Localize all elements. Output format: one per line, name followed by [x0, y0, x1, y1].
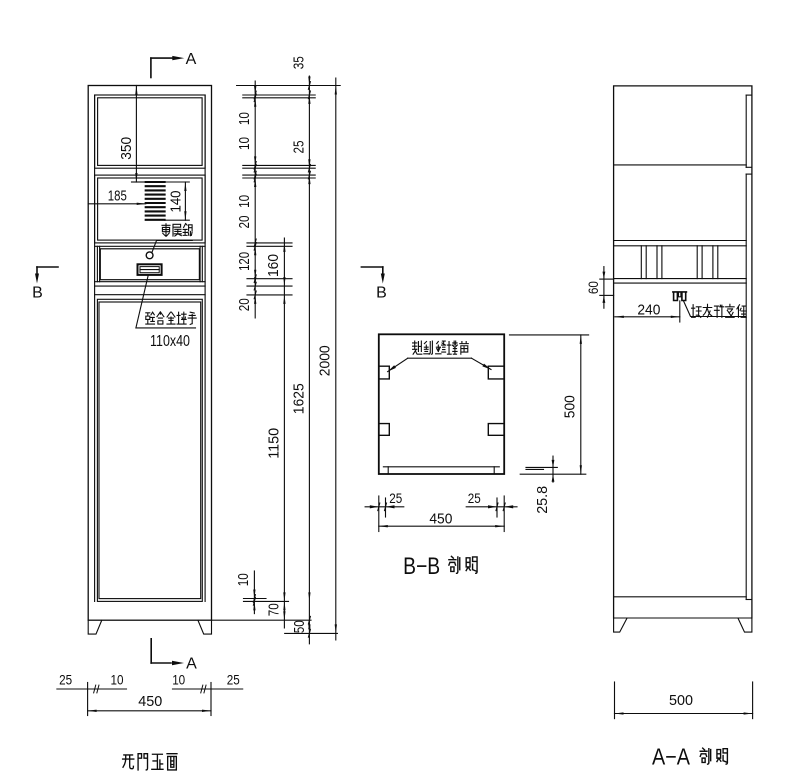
svg-text:B: B	[376, 285, 387, 302]
svg-text:B: B	[32, 285, 43, 302]
svg-text:20: 20	[236, 216, 253, 229]
svg-text:25: 25	[59, 672, 72, 688]
svg-text:2000: 2000	[316, 345, 333, 376]
svg-text:450: 450	[138, 693, 162, 710]
svg-text:25: 25	[290, 141, 307, 154]
svg-text:120: 120	[236, 252, 253, 271]
svg-text:1150: 1150	[266, 428, 283, 459]
svg-text:10: 10	[236, 195, 253, 208]
svg-text:50: 50	[291, 620, 308, 633]
svg-text:70: 70	[266, 603, 283, 616]
svg-text:160: 160	[265, 254, 282, 277]
svg-text:25: 25	[389, 490, 402, 506]
svg-text:500: 500	[669, 692, 693, 709]
svg-text:1625: 1625	[290, 383, 307, 414]
svg-text:500: 500	[561, 395, 578, 418]
svg-text:240: 240	[637, 302, 660, 319]
svg-text:10: 10	[172, 672, 185, 688]
svg-text:B−B: B−B	[403, 553, 440, 580]
svg-text:185: 185	[108, 188, 127, 205]
svg-text:35: 35	[290, 56, 307, 69]
svg-text:A: A	[186, 656, 197, 673]
svg-text:110x40: 110x40	[150, 333, 190, 350]
svg-text:25.8: 25.8	[534, 486, 551, 514]
svg-text:10: 10	[235, 573, 252, 586]
svg-text:60: 60	[585, 281, 601, 294]
svg-text:10: 10	[236, 112, 253, 125]
svg-text:350: 350	[118, 137, 135, 160]
svg-text:20: 20	[236, 298, 253, 311]
svg-text:10: 10	[236, 137, 253, 150]
svg-text:10: 10	[111, 672, 124, 688]
svg-text:A: A	[186, 51, 197, 68]
svg-text:140: 140	[168, 191, 185, 213]
svg-text:25: 25	[227, 672, 240, 688]
svg-text:450: 450	[429, 511, 452, 528]
svg-text:A−A: A−A	[652, 744, 691, 770]
svg-text:25: 25	[468, 490, 481, 506]
